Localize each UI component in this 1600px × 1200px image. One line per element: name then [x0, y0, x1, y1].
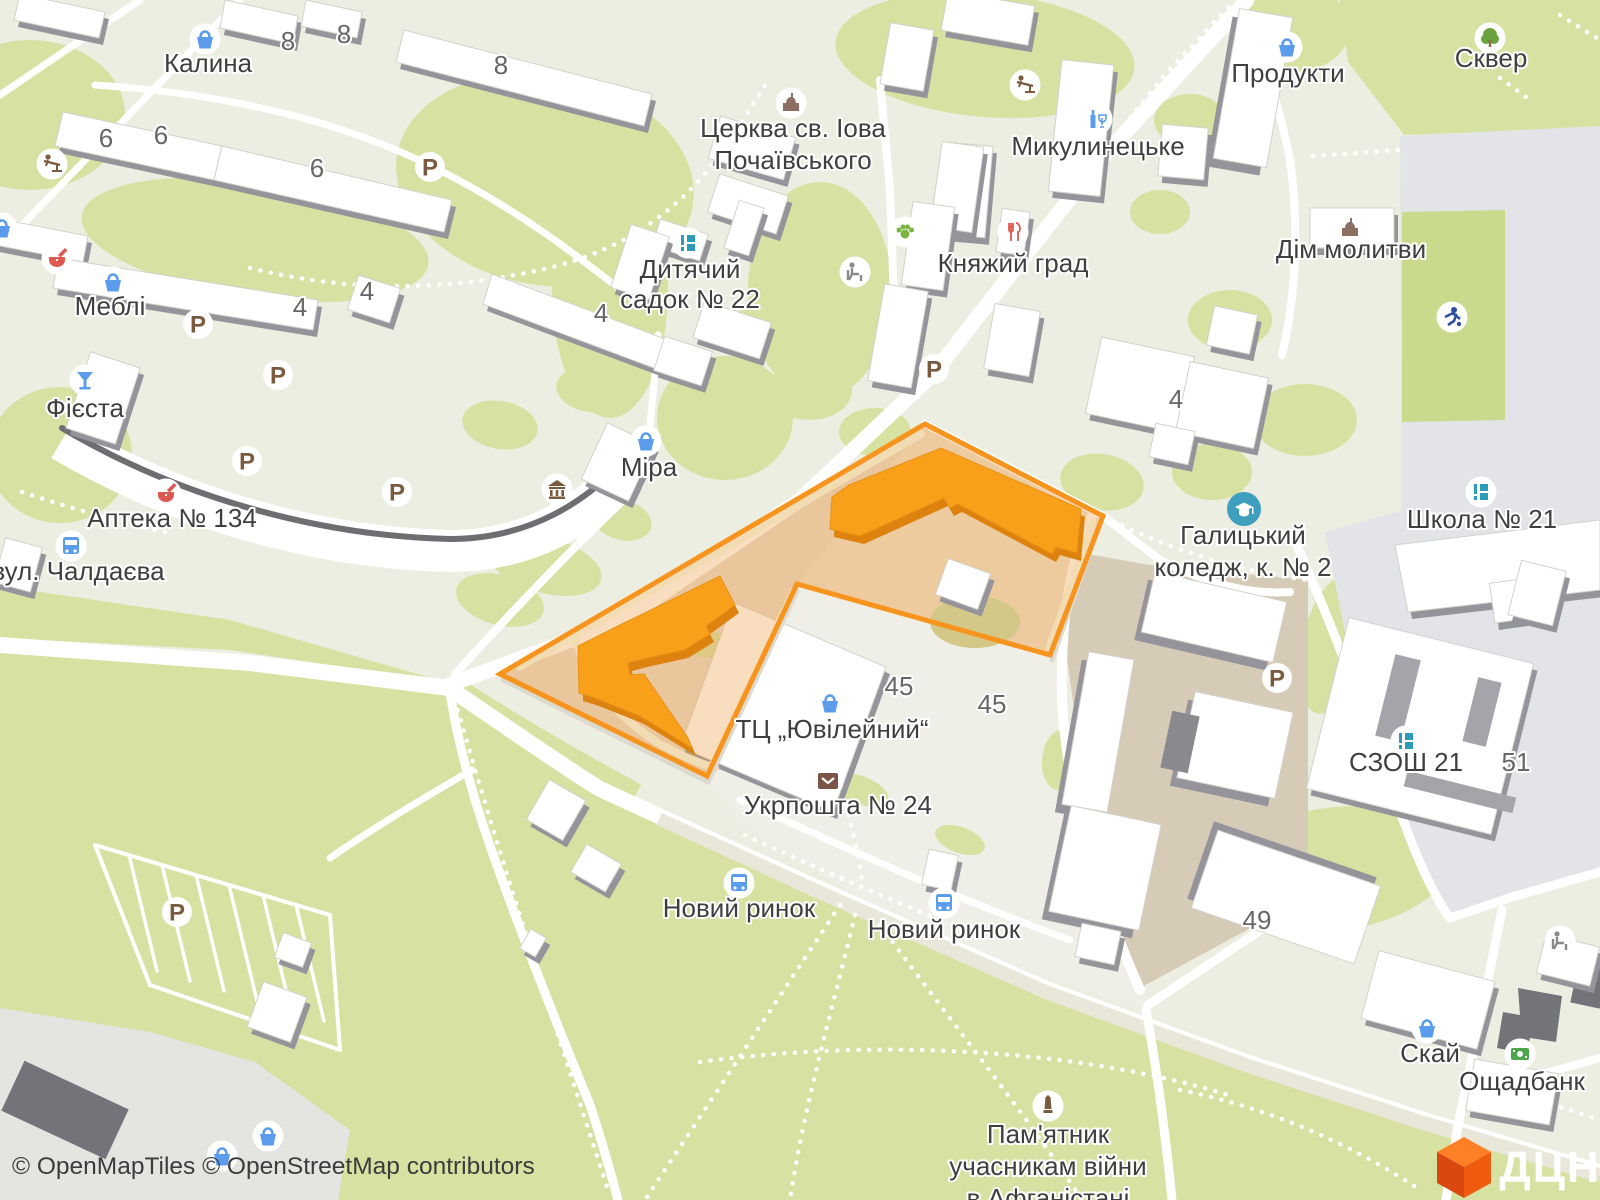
svg-text:© OpenMapTiles © OpenStreetMap: © OpenMapTiles © OpenStreetMap contribut…	[12, 1153, 535, 1180]
svg-text:49: 49	[1243, 905, 1272, 935]
svg-text:Ощадбанк: Ощадбанк	[1459, 1066, 1585, 1096]
svg-text:45: 45	[885, 671, 914, 701]
svg-text:ДЦН: ДЦН	[1499, 1143, 1600, 1192]
svg-text:51: 51	[1502, 747, 1531, 777]
svg-text:P: P	[270, 363, 286, 390]
svg-text:Дім молитви: Дім молитви	[1276, 234, 1426, 264]
svg-text:6: 6	[154, 120, 168, 150]
svg-text:4: 4	[594, 298, 608, 328]
svg-text:Міра: Міра	[621, 452, 678, 482]
svg-text:коледж, к. № 2: коледж, к. № 2	[1154, 552, 1331, 582]
svg-text:Микулинецьке: Микулинецьке	[1011, 131, 1184, 161]
svg-text:6: 6	[99, 123, 113, 153]
svg-text:Фієста: Фієста	[46, 393, 124, 423]
svg-text:СЗОШ 21: СЗОШ 21	[1349, 747, 1463, 777]
svg-text:Галицький: Галицький	[1180, 520, 1306, 550]
svg-text:4: 4	[293, 292, 307, 322]
svg-text:Продукти: Продукти	[1231, 58, 1344, 88]
svg-text:P: P	[926, 357, 942, 384]
svg-text:ТЦ „Ювілейний“: ТЦ „Ювілейний“	[735, 714, 928, 744]
svg-text:Дитячий: Дитячий	[640, 254, 741, 284]
svg-text:Новий ринок: Новий ринок	[663, 893, 816, 923]
svg-text:Меблі: Меблі	[75, 291, 146, 321]
svg-text:45: 45	[978, 689, 1007, 719]
svg-text:8: 8	[494, 50, 508, 80]
svg-text:8: 8	[337, 19, 351, 49]
svg-text:6: 6	[310, 153, 324, 183]
svg-text:Церква св. Іова: Церква св. Іова	[700, 113, 886, 143]
svg-text:Школа № 21: Школа № 21	[1407, 504, 1557, 534]
svg-text:4: 4	[1169, 384, 1183, 414]
svg-text:Сквер: Сквер	[1455, 43, 1528, 73]
svg-text:P: P	[169, 900, 185, 927]
svg-text:в Афганістані: в Афганістані	[967, 1183, 1130, 1200]
svg-text:P: P	[389, 480, 405, 507]
svg-text:4: 4	[360, 276, 374, 306]
svg-text:P: P	[239, 449, 255, 476]
svg-text:P: P	[1269, 666, 1285, 693]
svg-text:8: 8	[281, 26, 295, 56]
svg-text:Почаївського: Почаївського	[714, 145, 871, 175]
svg-text:P: P	[422, 155, 438, 182]
svg-text:Скай: Скай	[1400, 1038, 1460, 1068]
svg-text:учасникам війни: учасникам війни	[949, 1151, 1146, 1181]
svg-text:Аптека № 134: Аптека № 134	[87, 503, 257, 533]
svg-text:Калина: Калина	[164, 48, 253, 78]
svg-text:вул. Чалдаєва: вул. Чалдаєва	[0, 556, 165, 586]
svg-text:Пам'ятник: Пам'ятник	[987, 1119, 1110, 1149]
svg-text:Новий ринок: Новий ринок	[868, 914, 1021, 944]
svg-text:садок № 22: садок № 22	[620, 284, 760, 314]
svg-text:Укрпошта № 24: Укрпошта № 24	[744, 790, 932, 820]
svg-text:Княжий град: Княжий град	[938, 248, 1089, 278]
svg-text:P: P	[190, 312, 206, 339]
